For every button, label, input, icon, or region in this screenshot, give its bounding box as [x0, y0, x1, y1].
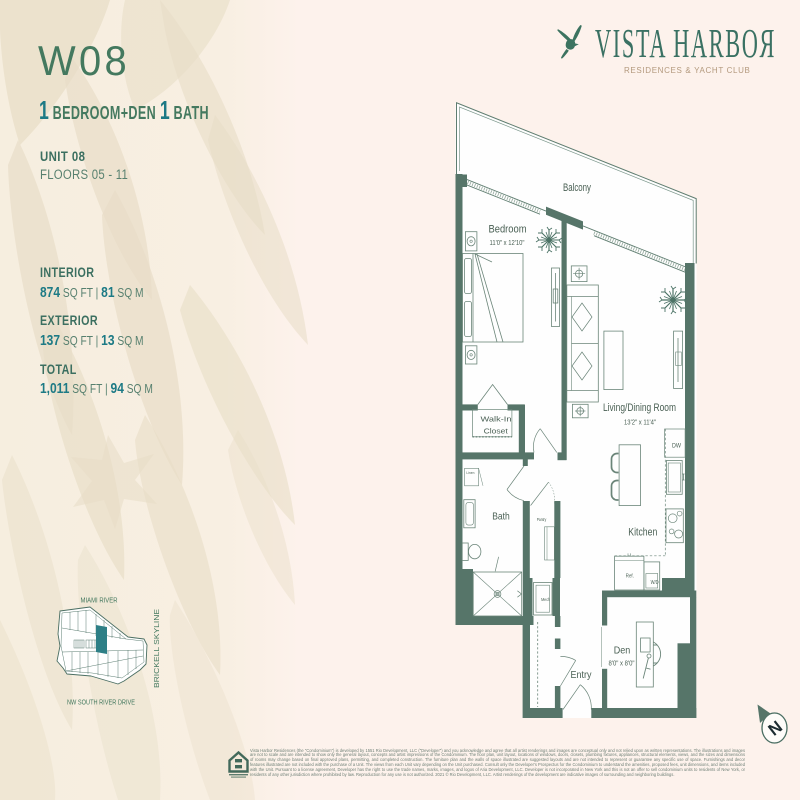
- svg-text:11'0" x 12'10": 11'0" x 12'10": [490, 238, 525, 247]
- svg-text:Closet: Closet: [484, 426, 509, 435]
- svg-text:NW SOUTH RIVER DRIVE: NW SOUTH RIVER DRIVE: [67, 698, 135, 707]
- svg-text:Mech: Mech: [541, 597, 550, 602]
- svg-text:Ref.: Ref.: [626, 573, 634, 579]
- svg-text:Bedroom: Bedroom: [489, 224, 527, 236]
- svg-text:BRICKELL SKYLINE: BRICKELL SKYLINE: [154, 609, 161, 688]
- svg-text:13'2" x 11'4": 13'2" x 11'4": [624, 418, 656, 427]
- svg-text:Linen: Linen: [466, 471, 474, 475]
- svg-text:MIAMI RIVER: MIAMI RIVER: [81, 596, 118, 605]
- svg-text:Living/Dining Room: Living/Dining Room: [603, 402, 676, 414]
- svg-text:DW: DW: [672, 442, 682, 449]
- svg-text:Walk-In: Walk-In: [481, 415, 512, 424]
- svg-text:Balcony: Balcony: [563, 182, 591, 194]
- svg-text:Den: Den: [614, 645, 631, 657]
- svg-text:Entry: Entry: [571, 669, 593, 681]
- svg-text:Kitchen: Kitchen: [628, 527, 657, 539]
- svg-text:Bath: Bath: [492, 511, 510, 523]
- svg-text:8'0" x 8'0": 8'0" x 8'0": [609, 661, 635, 668]
- svg-text:Pantry: Pantry: [537, 517, 547, 522]
